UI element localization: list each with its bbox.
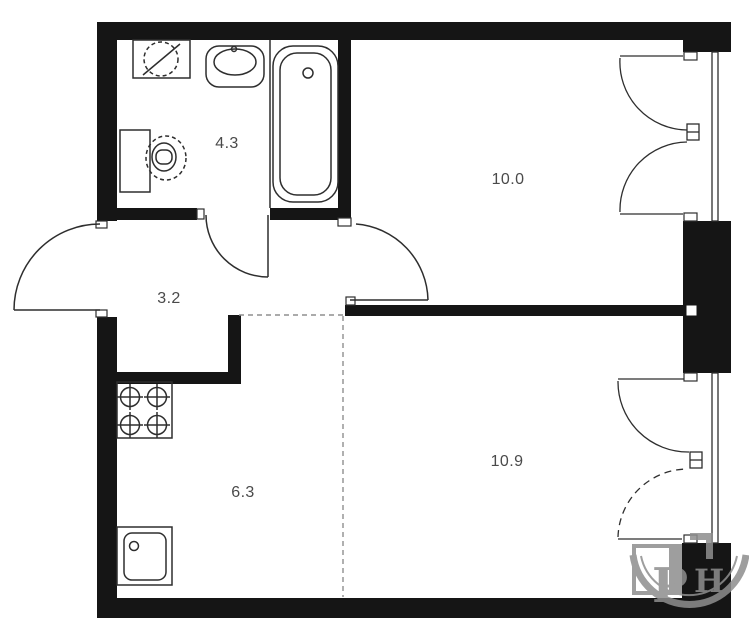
room-label-bottom-right: 10.9	[491, 453, 524, 471]
wall-corner-top-right	[683, 22, 731, 52]
wall-left-lower	[97, 317, 117, 618]
casement-arc-dashed	[618, 469, 687, 537]
room-label-bathroom: 4.3	[215, 135, 238, 153]
watermark-letter-2: Н	[694, 562, 724, 600]
room-label-top-right: 10.0	[492, 171, 525, 189]
stove-burner	[117, 384, 143, 410]
window-top	[620, 52, 718, 221]
floor-plan-drawing: Р Н	[0, 0, 749, 632]
room-door	[350, 224, 428, 300]
room-door-arc	[356, 224, 428, 300]
stove	[117, 382, 172, 438]
bathroom-sink	[206, 46, 264, 87]
wall-bathroom-right	[338, 40, 351, 218]
stove-burner	[144, 384, 170, 410]
casement-arc	[618, 381, 689, 452]
window-glazing	[712, 373, 718, 543]
door-jambs	[96, 52, 697, 543]
jamb	[346, 297, 355, 305]
jamb	[197, 209, 204, 219]
shaft-block	[683, 221, 731, 373]
casement-arc	[620, 142, 687, 212]
jamb	[338, 218, 351, 226]
toilet	[120, 130, 186, 192]
jamb	[684, 213, 697, 221]
stove-burner	[144, 412, 170, 438]
wall-rooms-divider	[345, 305, 683, 316]
washing-machine	[133, 40, 190, 78]
kitchen-sink	[117, 527, 172, 585]
watermark-letter-1: Р	[652, 558, 688, 614]
window-bottom	[618, 373, 718, 543]
wall-bottom	[97, 598, 731, 618]
walls	[97, 22, 731, 618]
casement-arc	[620, 58, 687, 130]
jamb	[684, 373, 697, 381]
bathroom-door-arc	[206, 215, 268, 277]
wall-left-upper	[97, 22, 117, 221]
entrance-door	[14, 224, 100, 310]
room-label-hallway: 3.2	[157, 290, 180, 308]
bathtub	[270, 40, 338, 208]
window-glazing	[712, 52, 718, 221]
wall-bathroom-bottom-right	[270, 208, 338, 220]
floor-plan: Р Н 4.3 10.0 3.2 6.3 10.9	[0, 0, 749, 632]
room-label-kitchen: 6.3	[231, 484, 254, 502]
wall-shaft-notch	[686, 305, 697, 316]
entrance-door-arc	[14, 224, 100, 310]
bathroom-door	[206, 215, 268, 277]
wall-top	[97, 22, 683, 40]
jamb	[96, 310, 107, 317]
wall-bathroom-bottom-left	[117, 208, 197, 220]
jamb	[684, 52, 697, 60]
stove-burner	[117, 412, 143, 438]
dashed-zone-boundary	[239, 315, 343, 597]
